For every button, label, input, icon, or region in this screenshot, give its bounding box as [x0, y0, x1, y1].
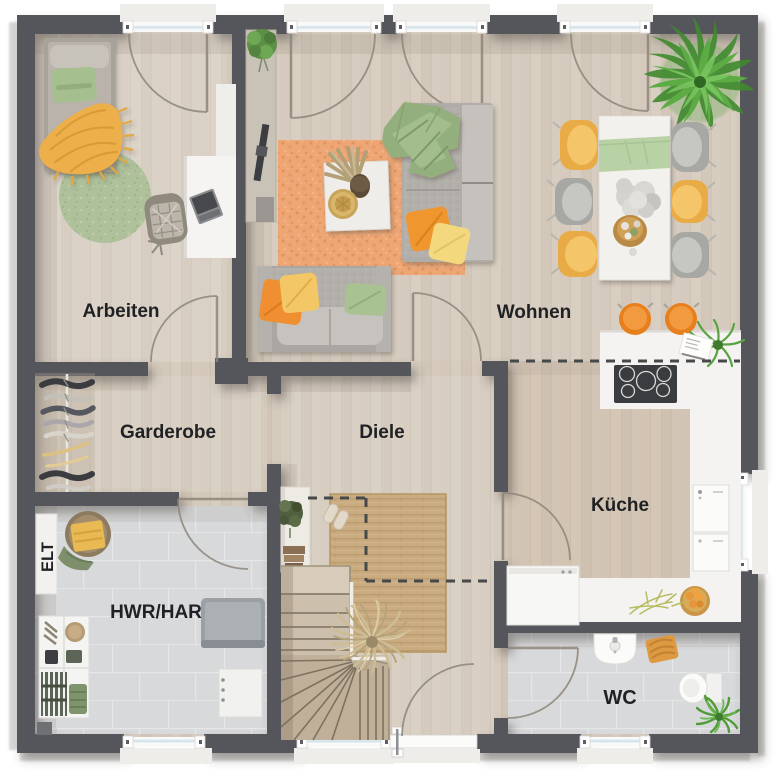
svg-text:HWR/HAR: HWR/HAR [110, 602, 202, 623]
svg-text:Wohnen: Wohnen [497, 302, 572, 323]
svg-text:ELT: ELT [39, 542, 57, 572]
svg-text:Arbeiten: Arbeiten [82, 301, 159, 322]
svg-text:WC: WC [603, 687, 636, 709]
svg-text:Küche: Küche [591, 495, 649, 516]
svg-text:Garderobe: Garderobe [120, 422, 216, 443]
svg-text:Diele: Diele [359, 422, 404, 443]
